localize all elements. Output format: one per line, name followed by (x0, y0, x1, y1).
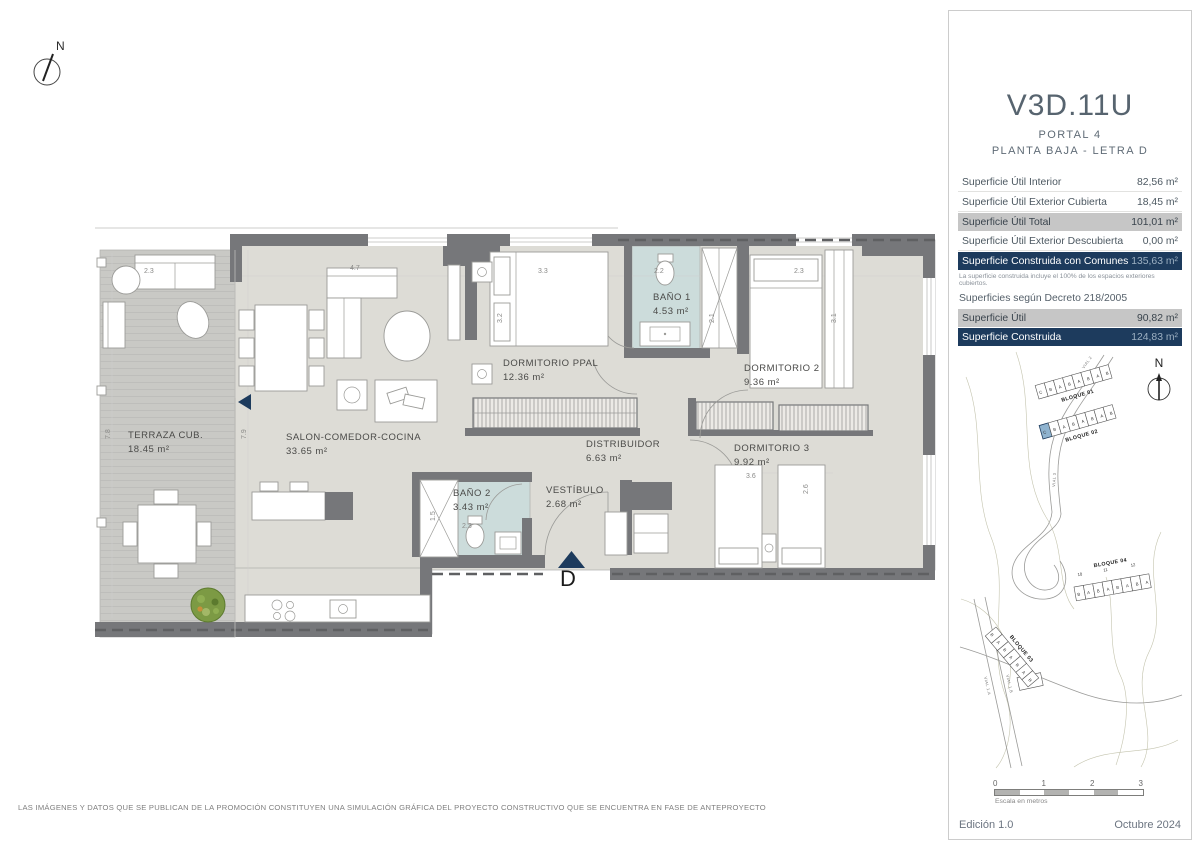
compass-needle (43, 54, 53, 81)
decree-heading: Superficies según Decreto 218/2005 (959, 293, 1182, 304)
siteplan-north-label: N (1155, 356, 1164, 370)
room-label-dorm2: DORMITORIO 29.36 m² (744, 362, 820, 391)
svg-text:3.1: 3.1 (831, 313, 838, 323)
panel-footer: Edición 1.0 Octubre 2024 (959, 819, 1181, 831)
room-label-vestibulo: VESTÍBULO2.68 m² (546, 484, 604, 513)
bloque-02: C B A B A B A B BLOQUE 02 (1039, 405, 1119, 450)
closet-x (702, 248, 737, 348)
date-label: Octubre 2024 (1114, 819, 1181, 831)
svg-text:2.1: 2.1 (709, 313, 716, 323)
svg-text:1.5: 1.5 (430, 511, 437, 521)
table-row: Superficie Útil90,82 m² (958, 309, 1182, 327)
svg-text:2.6: 2.6 (803, 484, 810, 494)
floor-plan: 2.3 4.7 3.3 2.2 2.3 3.2 2.1 3.1 7.8 7.9 … (88, 218, 944, 650)
room-label-salon: SALON-COMEDOR-COCINA33.65 m² (286, 431, 421, 460)
table-row: Superficie Construida con Comunes135,63 … (958, 252, 1182, 270)
surface-table: Superficie Útil Interior82,56 m² Superfi… (958, 173, 1182, 287)
decree-table: Superficies según Decreto 218/2005 Super… (958, 293, 1182, 347)
compass-north-label: N (56, 39, 65, 53)
svg-text:2.2: 2.2 (654, 268, 664, 275)
scale-bar-segments (994, 789, 1144, 796)
entrance-letter: D (560, 566, 576, 592)
svg-text:4.7: 4.7 (350, 265, 360, 272)
scale-bar: 0123 Escala en metros (994, 779, 1144, 805)
room-label-distribuidor: DISTRIBUIDOR6.63 m² (586, 438, 660, 467)
plant (191, 588, 225, 622)
svg-text:7.8: 7.8 (105, 429, 112, 439)
svg-text:VIAL 1.A: VIAL 1.A (983, 676, 992, 695)
table-row: Superficie Útil Exterior Descubierta0,00… (958, 232, 1182, 251)
svg-text:3.3: 3.3 (538, 268, 548, 275)
table-row: Superficie Útil Total101,01 m² (958, 213, 1182, 231)
contour-lines (961, 352, 1178, 768)
table-row: Superficie Útil Interior82,56 m² (958, 173, 1182, 192)
north-compass: N (24, 34, 88, 98)
scale-caption: Escala en metros (995, 798, 1144, 805)
edition-label: Edición 1.0 (959, 819, 1013, 831)
bloque-01: C B A B A B A B BLOQUE 01 (1035, 365, 1115, 410)
svg-text:3.2: 3.2 (497, 313, 504, 323)
room-label-dorm-ppal: DORMITORIO PPAL12.36 m² (503, 357, 598, 386)
table-row: Superficie Útil Exterior Cubierta18,45 m… (958, 193, 1182, 212)
surface-note: La superficie construida incluye el 100%… (958, 273, 1182, 287)
room-label-dorm3: DORMITORIO 39.92 m² (734, 442, 810, 471)
floor-subtitle: PLANTA BAJA - LETRA D (949, 145, 1191, 157)
table-row: Superficie Construida124,83 m² (958, 328, 1182, 346)
room-label-bano2: BAÑO 23.43 m² (453, 487, 491, 516)
bloque-03: B A B A B A B BLOQUE 03 (985, 622, 1045, 687)
bloque-04: B A B A B A B A 10 11 12 BLOQUE 04 (1071, 554, 1152, 601)
info-panel: V3D.11U PORTAL 4 PLANTA BAJA - LETRA D S… (948, 10, 1192, 840)
svg-text:3.6: 3.6 (746, 473, 756, 480)
svg-text:VIAL 1.B: VIAL 1.B (1005, 674, 1014, 693)
svg-text:11: 11 (1103, 567, 1109, 573)
unit-title: V3D.11U (949, 89, 1191, 123)
scale-ticks: 0123 (994, 779, 1144, 788)
svg-text:10: 10 (1077, 571, 1083, 577)
svg-text:2.3: 2.3 (144, 268, 154, 275)
room-label-bano1: BAÑO 14.53 m² (653, 291, 691, 320)
svg-text:BLOQUE 04: BLOQUE 04 (1093, 557, 1127, 569)
siteplan-compass: N (1148, 356, 1170, 400)
site-plan: C B A B A B A B BLOQUE 01 C B A B A B A … (956, 347, 1184, 769)
svg-text:2.3: 2.3 (462, 523, 472, 530)
svg-text:7.9: 7.9 (241, 429, 248, 439)
portal-subtitle: PORTAL 4 (949, 129, 1191, 141)
svg-text:VIAL 2: VIAL 2 (1081, 355, 1093, 370)
disclaimer-text: LAS IMÁGENES Y DATOS QUE SE PUBLICAN DE … (18, 803, 778, 812)
svg-text:2.3: 2.3 (794, 268, 804, 275)
svg-text:12: 12 (1130, 562, 1136, 568)
room-label-terraza: TERRAZA CUB.18.45 m² (128, 429, 203, 458)
svg-text:VIAL 3: VIAL 3 (1051, 472, 1057, 487)
